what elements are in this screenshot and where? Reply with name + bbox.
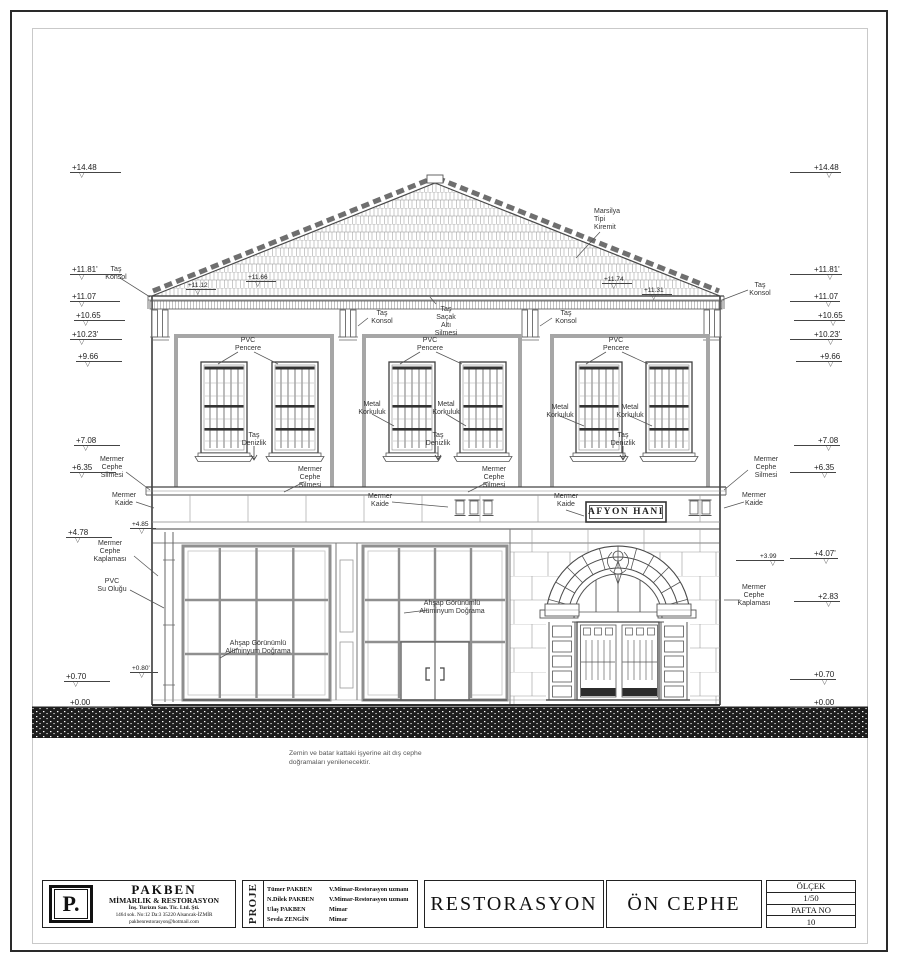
- level-triangle-icon: ▽: [790, 173, 841, 178]
- elevation-marker: +10.23'▽: [790, 330, 842, 345]
- label-mermer-silmesi-mid2: Mermer Cephe Silmesi: [472, 466, 516, 490]
- level-triangle-icon: ▽: [74, 446, 120, 451]
- level-triangle-icon: ▽: [68, 708, 114, 713]
- elevation-marker: +4.07'▽: [790, 549, 838, 564]
- level-triangle-icon: ▽: [790, 340, 842, 345]
- level-triangle-icon: ▽: [76, 362, 122, 367]
- level-triangle-icon: ▽: [790, 473, 836, 478]
- team-row: Tümer PAKBENV.Mimar-Restorasyon uzmanı: [267, 886, 414, 893]
- label-metal-korkuluk-2: Metal Korkuluk: [424, 401, 468, 417]
- elevation-marker: +4.78▽: [66, 528, 112, 543]
- elevation-marker: +0.00▽: [790, 698, 836, 713]
- elevation-marker: +9.66▽: [796, 352, 842, 367]
- company-logo: P.: [49, 885, 93, 923]
- label-metal-korkuluk-4: Metal Korkuluk: [608, 404, 652, 420]
- ground-floor: [152, 529, 720, 705]
- elevation-marker: +14.48▽: [70, 163, 121, 178]
- company-email: pakbenrestorasyon@hotmail.com: [93, 919, 235, 926]
- level-triangle-icon: ▽: [794, 321, 845, 326]
- elevation-marker: +0.80'▽: [130, 665, 158, 678]
- level-triangle-icon: ▽: [70, 340, 122, 345]
- elevation-marker: +11.81'▽: [790, 265, 842, 280]
- drawing-title: ÖN CEPHE: [606, 880, 762, 928]
- label-pvc-su-olugu: PVC Su Oluğu: [90, 578, 134, 594]
- level-triangle-icon: ▽: [64, 682, 110, 687]
- elevation-marker: +2.83▽: [794, 592, 840, 607]
- level-triangle-icon: ▽: [70, 302, 120, 307]
- elevation-marker: +4.85▽: [130, 521, 156, 534]
- elevation-marker: +14.48▽: [790, 163, 841, 178]
- level-triangle-icon: ▽: [642, 295, 672, 300]
- label-pvc-pencere-2: PVC Pencere: [408, 337, 452, 353]
- level-triangle-icon: ▽: [794, 602, 840, 607]
- label-pvc-pencere-1: PVC Pencere: [226, 337, 270, 353]
- elevation-marker: +10.65▽: [794, 311, 845, 326]
- label-ahsap-dograma-1: Ahşap Görünümlü Alüminyum Doğrama: [218, 640, 298, 656]
- elevation-marker: +6.35▽: [70, 463, 116, 478]
- elevation-marker: +11.81'▽: [70, 265, 122, 280]
- elevation-marker: +10.65▽: [74, 311, 125, 326]
- company-line1: İnş. Turizm San. Tic. Ltd. Şti.: [93, 905, 235, 912]
- label-tas-denizlik-2: Taş Denizlik: [416, 432, 460, 448]
- level-triangle-icon: ▽: [790, 708, 836, 713]
- scale-label: ÖLÇEK: [767, 881, 855, 893]
- label-metal-korkuluk-1: Metal Korkuluk: [350, 401, 394, 417]
- label-mermer-kaide-left: Mermer Kaide: [102, 492, 146, 508]
- label-tas-konsol-mid-left: Taş Konsol: [362, 310, 402, 326]
- sheet-number-label: PAFTA NO: [767, 905, 855, 917]
- building-sign: AFYON HANI: [586, 502, 666, 522]
- titleblock-team: PROJE Tümer PAKBENV.Mimar-Restorasyon uz…: [242, 880, 418, 928]
- label-pvc-pencere-3: PVC Pencere: [594, 337, 638, 353]
- label-sacak-alti-silmesi: Taş Saçak Altı Silmesi: [426, 306, 466, 338]
- eave-elevation-marker: +11.12▽: [186, 282, 216, 295]
- level-triangle-icon: ▽: [70, 173, 121, 178]
- elevation-marker: +7.08▽: [74, 436, 120, 451]
- level-triangle-icon: ▽: [130, 673, 158, 678]
- storefront-right: [363, 546, 507, 700]
- eave-elevation-marker: +11.66▽: [246, 274, 276, 287]
- label-mermer-silmesi-right: Mermer Cephe Silmesi: [742, 456, 790, 480]
- team-row: Ulaş PAKBENMimar: [267, 906, 414, 913]
- elevation-marker: +0.00▽: [68, 698, 114, 713]
- level-triangle-icon: ▽: [790, 275, 842, 280]
- elevation-marker: +0.70▽: [64, 672, 110, 687]
- elevation-marker: +9.66▽: [76, 352, 122, 367]
- roof: [152, 175, 720, 296]
- proje-label-cell: PROJE: [243, 881, 264, 927]
- label-tas-denizlik-3: Taş Denizlik: [601, 432, 645, 448]
- level-triangle-icon: ▽: [796, 362, 842, 367]
- level-triangle-icon: ▽: [246, 282, 276, 287]
- elevation-marker: +7.08▽: [794, 436, 840, 451]
- level-triangle-icon: ▽: [186, 290, 216, 295]
- ground-hatch: [32, 707, 868, 738]
- elevation-marker: +0.70▽: [790, 670, 836, 685]
- elevation-marker: +10.23'▽: [70, 330, 122, 345]
- note-text: Zemin ve batar kattaki işyerine ait dış …: [289, 749, 489, 767]
- eave-elevation-marker: +11.31▽: [642, 287, 672, 300]
- level-triangle-icon: ▽: [790, 302, 840, 307]
- eave-elevation-marker: +11.74▽: [602, 276, 632, 289]
- level-triangle-icon: ▽: [790, 559, 838, 564]
- level-triangle-icon: ▽: [794, 446, 840, 451]
- label-ahsap-dograma-2: Ahşap Görünümlü Alüminyum Doğrama: [412, 600, 492, 616]
- level-triangle-icon: ▽: [70, 473, 116, 478]
- label-mermer-silmesi-mid1: Mermer Cephe Silmesi: [288, 466, 332, 490]
- label-tas-konsol-mid-right: Taş Konsol: [546, 310, 586, 326]
- label-mermer-kaplamasi-left: Mermer Cephe Kaplaması: [86, 540, 134, 564]
- level-triangle-icon: ▽: [74, 321, 125, 326]
- elevation-marker: +6.35▽: [790, 463, 836, 478]
- team-row: Sevda ZENGİNMimar: [267, 916, 414, 923]
- drawing-sheet: Marsilya Tipi Kiremit Taş Konsol Taş Kon…: [0, 0, 900, 964]
- level-triangle-icon: ▽: [66, 538, 112, 543]
- company-logo-letter: P.: [54, 889, 88, 919]
- scale-value: 1/50: [767, 893, 855, 905]
- label-mermer-kaide-right: Mermer Kaide: [732, 492, 776, 508]
- titleblock-scale-sheet: ÖLÇEK 1/50 PAFTA NO 10: [766, 880, 856, 928]
- storefront-left: [183, 546, 330, 700]
- label-metal-korkuluk-3: Metal Korkuluk: [538, 404, 582, 420]
- company-name: PAKBEN: [93, 883, 235, 896]
- label-tas-denizlik-1: Taş Denizlik: [232, 432, 276, 448]
- elevation-marker: +3.99▽: [736, 553, 784, 566]
- company-subtitle: MİMARLIK & RESTORASYON: [93, 896, 235, 905]
- label-mermer-kaide-mid1: Mermer Kaide: [358, 493, 402, 509]
- level-triangle-icon: ▽: [70, 275, 122, 280]
- level-triangle-icon: ▽: [602, 284, 632, 289]
- label-mermer-kaplamasi-right: Mermer Cephe Kaplaması: [730, 584, 778, 608]
- team-row: N.Dilek PAKBENV.Mimar-Restorasyon uzmanı: [267, 896, 414, 903]
- titleblock-company: P. PAKBEN MİMARLIK & RESTORASYON İnş. Tu…: [42, 880, 236, 928]
- label-mermer-kaide-mid2: Mermer Kaide: [544, 493, 588, 509]
- level-triangle-icon: ▽: [130, 529, 156, 534]
- sheet-number-value: 10: [767, 916, 855, 927]
- project-type-title: RESTORASYON: [424, 880, 604, 928]
- level-triangle-icon: ▽: [736, 561, 784, 566]
- label-marsilya-kiremit: Marsilya Tipi Kiremit: [594, 208, 634, 232]
- label-tas-konsol-right: Taş Konsol: [740, 282, 780, 298]
- entrance-arch: [510, 529, 720, 705]
- facade-linework: [0, 0, 900, 964]
- elevation-marker: +11.07▽: [70, 292, 120, 307]
- level-triangle-icon: ▽: [790, 680, 836, 685]
- elevation-marker: +11.07▽: [790, 292, 840, 307]
